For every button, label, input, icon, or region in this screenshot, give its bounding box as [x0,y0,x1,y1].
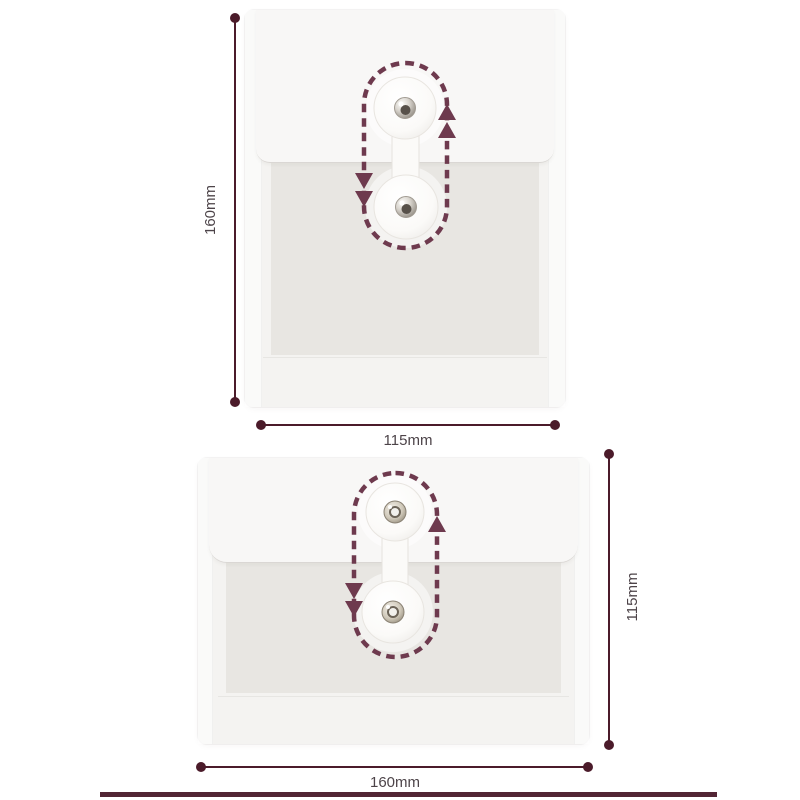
snap-highlight [399,200,404,205]
dimension-endpoint-dot [604,449,614,459]
landscape-envelope [198,458,589,744]
dimension-endpoint-dot [604,740,614,750]
snap-reflection [402,204,412,214]
portrait-envelope [245,10,565,407]
product-dimension-diagram: 160mm 115mm [0,0,800,800]
dimension-endpoint-dot [550,420,560,430]
landscape-height-dimension-label: 115mm [625,567,641,627]
arrow-up-icon [438,122,456,138]
string-tie-closure-portrait [245,10,565,407]
snap-highlight [398,101,403,106]
landscape-width-dimension-label: 160mm [365,775,425,791]
arrow-down-icon [355,173,373,189]
dimension-endpoint-dot [230,397,240,407]
string-tie-closure-landscape [198,458,589,744]
eyelet-highlight [386,605,390,609]
landscape-height-dimension-line [608,453,610,746]
portrait-width-dimension-label: 115mm [378,433,438,449]
dimension-endpoint-dot [256,420,266,430]
portrait-width-dimension-line [260,424,556,426]
dimension-endpoint-dot [230,13,240,23]
eyelet-hole [390,507,400,517]
eyelet-hole [388,607,398,617]
landscape-width-dimension-line [200,766,589,768]
portrait-height-dimension-label: 160mm [203,180,219,240]
dimension-endpoint-dot [196,762,206,772]
dimension-endpoint-dot [583,762,593,772]
snap-reflection [401,105,411,115]
portrait-height-dimension-line [234,17,236,403]
eyelet-highlight [388,505,392,509]
footer-divider [100,792,717,797]
